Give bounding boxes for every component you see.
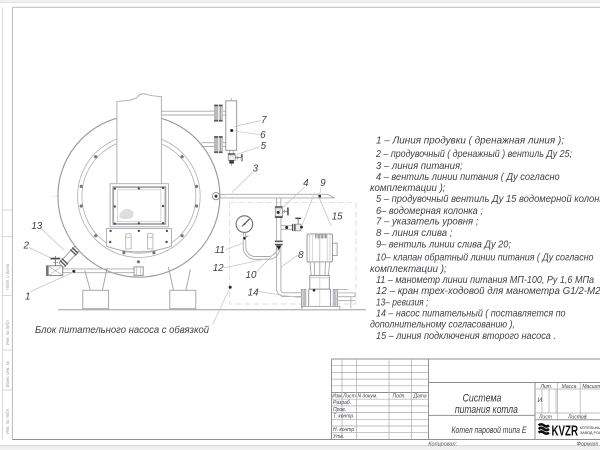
svg-text:Инв. № дубл.: Инв. № дубл.	[5, 319, 10, 345]
svg-text:4 – вентиль линии питания (: 4 – вентиль линии питания ( Ду согласно	[376, 172, 560, 183]
svg-text:9: 9	[320, 178, 326, 189]
svg-text:3: 3	[253, 164, 259, 175]
svg-text:10– клапан обратный линии пит: 10– клапан обратный линии питания ( Ду с…	[376, 251, 594, 263]
svg-text:комплектации );: комплектации );	[370, 183, 446, 194]
svg-text:7: 7	[261, 115, 267, 126]
svg-text:2 – продувочный ( дренажный: 2 – продувочный ( дренажный ) вентиль Ду…	[375, 149, 572, 160]
svg-text:2: 2	[22, 241, 29, 252]
svg-text:ЗАВОД РОСТ: ЗАВОД РОСТ	[580, 431, 600, 435]
svg-text:Котел паровой типа Е: Котел паровой типа Е	[452, 425, 528, 435]
svg-text:1: 1	[25, 291, 30, 302]
svg-text:Дата: Дата	[413, 393, 427, 399]
svg-text:11 – манометр линии питания М: 11 – манометр линии питания МП-100, Ру 1…	[376, 275, 594, 286]
svg-text:Н. контр.: Н. контр.	[333, 427, 356, 433]
svg-text:дополнительному согласованию ): дополнительному согласованию ),	[370, 320, 515, 331]
svg-text:10: 10	[246, 270, 257, 281]
svg-text:KVZR: KVZR	[552, 423, 579, 439]
svg-text:8: 8	[298, 250, 304, 261]
svg-text:12 – кран трех-ходовой для ма: 12 – кран трех-ходовой для манометра G1/…	[376, 286, 600, 297]
svg-text:7 – указатель уровня ;: 7 – указатель уровня ;	[376, 217, 479, 228]
svg-text:КОТЕЛЬНЫЙ: КОТЕЛЬНЫЙ	[580, 426, 600, 430]
svg-text:9– вентиль линии слива Ду 20;: 9– вентиль линии слива Ду 20;	[376, 239, 511, 250]
svg-text:8 – линия слива ;: 8 – линия слива ;	[376, 228, 453, 239]
svg-text:комплектации );: комплектации );	[370, 264, 447, 275]
svg-text:Подп. и дата: Подп. и дата	[5, 263, 10, 290]
svg-text:Система: Система	[463, 393, 502, 405]
svg-text:1 – Линия продувки ( дренажн: 1 – Линия продувки ( дренажная линия );	[376, 136, 564, 147]
svg-text:Листов: Листов	[567, 414, 587, 420]
svg-text:14 – насос питательный ( пос: 14 – насос питательный ( поставляется по	[376, 309, 566, 320]
svg-text:Копировал:: Копировал:	[428, 441, 457, 447]
svg-text:Блок питательного насоса с обв: Блок питательного насоса с обвязкой	[35, 324, 209, 336]
svg-text:Инв. № подл.: Инв. № подл.	[5, 408, 10, 434]
svg-text:Формат А3: Формат А3	[577, 441, 600, 447]
svg-text:Изм.Лист: Изм.Лист	[332, 393, 356, 399]
svg-text:3 – линия питания;: 3 – линия питания;	[376, 161, 463, 172]
svg-text:Масштаб: Масштаб	[582, 384, 600, 390]
svg-text:6– водомерная колонка ;: 6– водомерная колонка ;	[376, 206, 483, 217]
svg-text:Взам. инв. №: Взам. инв. №	[5, 361, 10, 387]
svg-text:N докум.: N докум.	[358, 393, 378, 399]
svg-text:6: 6	[260, 130, 266, 141]
svg-text:15: 15	[332, 211, 343, 222]
svg-text:Утв.: Утв.	[333, 434, 344, 440]
svg-text:14: 14	[248, 288, 259, 299]
svg-text:Подп.: Подп.	[393, 393, 406, 399]
svg-text:11: 11	[215, 245, 225, 256]
svg-text:12: 12	[213, 263, 224, 274]
svg-text:питания котла: питания котла	[455, 404, 518, 416]
svg-text:13: 13	[31, 221, 42, 232]
svg-text:15 – линия подключения второг: 15 – линия подключения второго насоса .	[376, 331, 556, 342]
svg-text:Пров.: Пров.	[333, 407, 346, 413]
svg-text:Лист: Лист	[538, 414, 552, 420]
svg-text:Разраб.: Разраб.	[333, 400, 351, 406]
svg-text:5: 5	[261, 141, 267, 152]
svg-text:Масса: Масса	[562, 384, 577, 390]
svg-text:5 – продувочный вентиль Ду 15: 5 – продувочный вентиль Ду 15 водомерной…	[376, 194, 600, 205]
svg-text:4: 4	[303, 178, 309, 189]
svg-text:13– ревизия ;: 13– ревизия ;	[376, 297, 428, 308]
svg-text:Т. контр.: Т. контр.	[333, 414, 355, 420]
svg-text:Лит.: Лит.	[539, 384, 552, 390]
svg-text:И: И	[538, 397, 543, 404]
